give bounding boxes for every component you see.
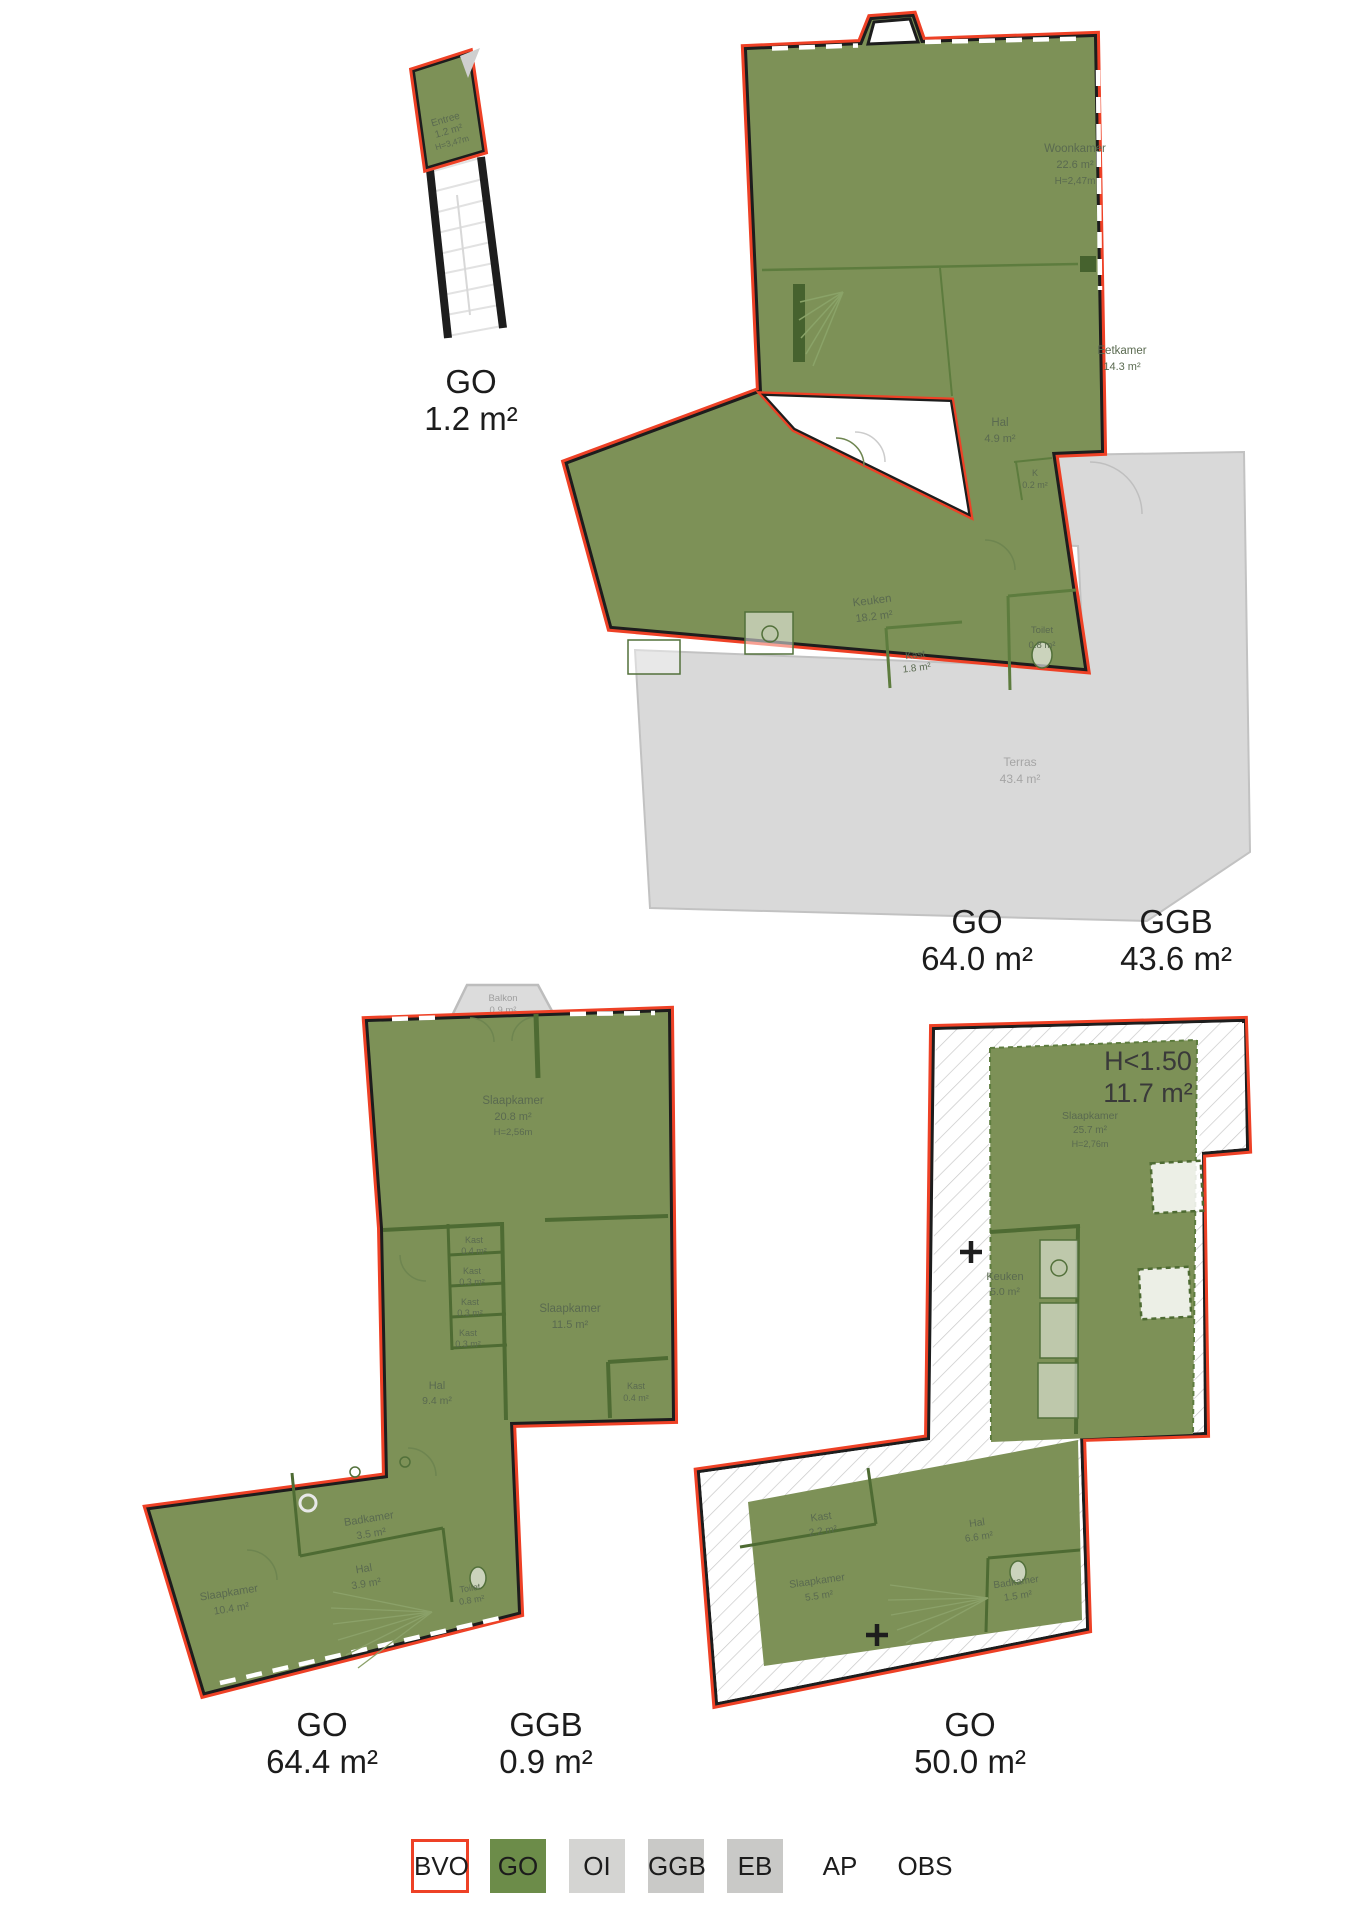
room-area: 0.2 m² <box>1022 480 1048 490</box>
room-name: Keuken <box>986 1271 1023 1283</box>
room-name: Toilet <box>1031 625 1054 636</box>
plan-living: Woonkamer 22.6 m² H=2,47m Eetkamer 14.3 … <box>568 17 1250 921</box>
room-name: Kast <box>461 1297 480 1307</box>
room-height: H=2,56m <box>494 1127 533 1138</box>
total-bedrooms-ggb: GGB 0.9 m² <box>436 1706 656 1780</box>
plan-entree: Entree 1.2 m² H=3,47m <box>415 48 503 338</box>
total-label: GO <box>361 363 581 400</box>
legend-item-oi: OI <box>569 1839 625 1893</box>
room-name: Woonkamer <box>1044 143 1106 155</box>
room-name: Eetkamer <box>1097 345 1146 357</box>
total-value: 1.2 m² <box>361 400 581 437</box>
total-value: 64.0 m² <box>867 940 1087 977</box>
total-bedrooms-go: GO 64.4 m² <box>212 1706 432 1780</box>
legend-item-ap: AP <box>812 1839 868 1893</box>
room-name: Balkon <box>488 993 517 1004</box>
room-area: 0.3 m² <box>457 1308 483 1318</box>
legend-item-eb: EB <box>727 1839 783 1893</box>
room-name: Kast <box>459 1328 478 1338</box>
room-area: 0.4 m² <box>623 1393 649 1403</box>
room-name: Terras <box>1003 755 1036 769</box>
room-area: 5.0 m² <box>990 1286 1020 1298</box>
floorplan-sheet: Entree 1.2 m² H=3,47m <box>0 0 1358 1920</box>
room-area: 22.6 m² <box>1056 159 1094 171</box>
room-area: 14.3 m² <box>1103 361 1141 373</box>
plan-attic: H<1.50 11.7 m² Slaapkamer 25.7 m² H=2,76… <box>700 1022 1246 1702</box>
room-height: H=2,76m <box>1072 1139 1109 1149</box>
total-entree-go: GO 1.2 m² <box>361 363 581 437</box>
room-name: Kast <box>463 1266 482 1276</box>
bay-window <box>868 19 918 44</box>
total-value: 64.4 m² <box>212 1743 432 1780</box>
room-area: 0.4 m² <box>461 1246 487 1256</box>
total-label: GO <box>212 1706 432 1743</box>
room-name: Kast <box>465 1235 484 1245</box>
room-name: Slaapkamer <box>482 1095 544 1107</box>
room-area: 0.3 m² <box>455 1339 481 1349</box>
total-value: 0.9 m² <box>436 1743 656 1780</box>
room-area: 4.9 m² <box>984 433 1016 445</box>
chimney-block <box>1080 256 1096 272</box>
room-area: 20.8 m² <box>494 1111 532 1123</box>
room-area: 43.4 m² <box>1000 772 1041 786</box>
total-living-ggb: GGB 43.6 m² <box>1066 903 1286 977</box>
room-area: 9.4 m² <box>422 1395 452 1407</box>
room-area: 0.3 m² <box>459 1277 485 1287</box>
room-height: H=2,47m <box>1055 176 1096 187</box>
total-label: GGB <box>1066 903 1286 940</box>
total-label: GO <box>860 1706 1080 1743</box>
legend-item-go: GO <box>490 1839 546 1893</box>
hlabel-line1: H<1.50 <box>1104 1046 1192 1076</box>
room-area: 0.8 m² <box>1029 640 1056 651</box>
total-label: GO <box>867 903 1087 940</box>
stair-rail-right <box>481 157 503 328</box>
legend-item-obs: OBS <box>897 1839 953 1893</box>
room-name: Kast <box>627 1381 646 1391</box>
legend-item-bvo: BVO <box>411 1839 469 1893</box>
hlabel-line2: 11.7 m² <box>1103 1078 1193 1108</box>
room-name: Kast <box>905 649 926 662</box>
room-area: 25.7 m² <box>1073 1125 1108 1136</box>
total-value: 43.6 m² <box>1066 940 1286 977</box>
room-name: K <box>1032 468 1038 478</box>
legend: BVO GO OI GGB EB AP OBS <box>0 1839 1358 1895</box>
stair-rail-left <box>430 170 448 338</box>
room-name: Hal <box>991 417 1008 429</box>
room-name: Hal <box>968 1516 985 1530</box>
room-name: Hal <box>355 1562 373 1576</box>
total-value: 50.0 m² <box>860 1743 1080 1780</box>
living-go-area <box>568 17 1101 668</box>
plan-bedrooms: Balkon 0.9 m² <box>150 985 672 1692</box>
room-name: Slaapkamer <box>539 1303 601 1315</box>
legend-item-ggb: GGB <box>648 1839 704 1893</box>
total-living-go: GO 64.0 m² <box>867 903 1087 977</box>
total-label: GGB <box>436 1706 656 1743</box>
room-name: Hal <box>429 1380 446 1392</box>
room-name: Slaapkamer <box>1062 1110 1119 1122</box>
room-area: 11.5 m² <box>552 1319 589 1331</box>
total-attic-go: GO 50.0 m² <box>860 1706 1080 1780</box>
